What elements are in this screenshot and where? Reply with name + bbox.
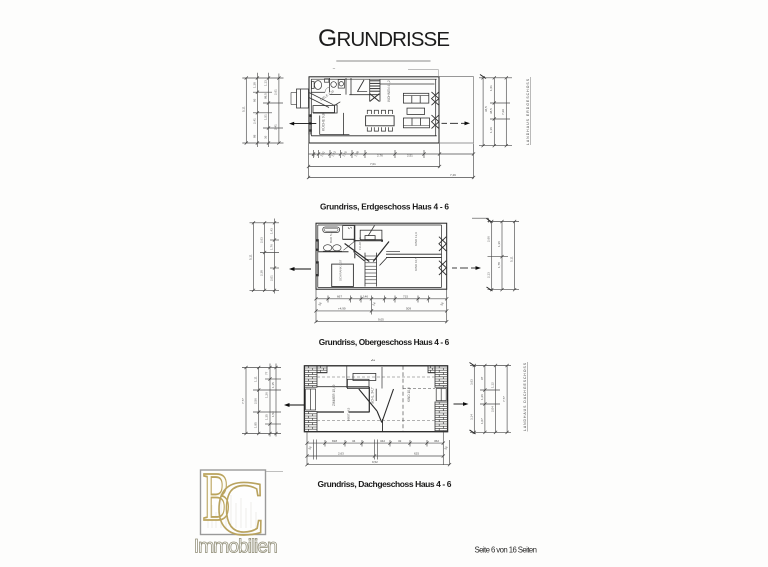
svg-text:1,13: 1,13 <box>264 80 268 86</box>
svg-text:G: G <box>318 25 337 52</box>
svg-text:Grundriss, Obergeschoss Haus 4: Grundriss, Obergeschoss Haus 4 - 6 <box>319 337 450 347</box>
svg-text:625: 625 <box>414 452 419 456</box>
svg-text:36: 36 <box>439 301 444 306</box>
svg-text:1,13: 1,13 <box>330 150 337 157</box>
svg-text:Grundriss, Dachgeschoss Haus 4: Grundriss, Dachgeschoss Haus 4 - 6 <box>318 479 452 489</box>
svg-text:1,76: 1,76 <box>270 244 274 250</box>
svg-text:5,11: 5,11 <box>242 106 246 112</box>
svg-text:2,61: 2,61 <box>274 89 278 95</box>
svg-text:1,51: 1,51 <box>264 114 268 120</box>
svg-text:SCHL. 34,7: SCHL. 34,7 <box>371 387 375 404</box>
svg-text:362: 362 <box>434 439 439 443</box>
svg-text:36,5: 36,5 <box>484 106 488 112</box>
svg-text:1,26: 1,26 <box>341 150 348 157</box>
svg-text:3,63: 3,63 <box>469 379 473 385</box>
svg-text:1,07: 1,07 <box>480 418 484 424</box>
svg-text:2,51: 2,51 <box>407 154 413 158</box>
svg-text:1,38: 1,38 <box>253 82 257 88</box>
svg-text:1,35: 1,35 <box>265 414 269 420</box>
svg-text:7,77: 7,77 <box>241 398 245 404</box>
svg-text:77: 77 <box>265 371 269 375</box>
svg-text:38,5: 38,5 <box>489 108 493 114</box>
svg-text:1,36: 1,36 <box>497 241 501 247</box>
svg-text:36: 36 <box>307 445 312 450</box>
svg-text:KIND 10,5: KIND 10,5 <box>414 257 418 271</box>
svg-text:509: 509 <box>406 307 411 311</box>
svg-text:DIELE 7,35: DIELE 7,35 <box>319 89 335 102</box>
svg-text:2,04: 2,04 <box>491 406 495 412</box>
svg-text:1,15: 1,15 <box>271 382 275 388</box>
svg-text:36: 36 <box>264 135 268 139</box>
svg-text:KIND 13,9: KIND 13,9 <box>414 232 418 246</box>
svg-text:34: 34 <box>352 439 356 443</box>
svg-text:667: 667 <box>337 295 342 299</box>
svg-text:2,01: 2,01 <box>270 275 274 281</box>
svg-text:1,26: 1,26 <box>265 392 269 398</box>
svg-text:KÜCHE 9,8: KÜCHE 9,8 <box>322 113 326 131</box>
svg-text:342: 342 <box>380 439 385 443</box>
svg-text:1,52: 1,52 <box>271 411 275 417</box>
svg-text:2,56: 2,56 <box>254 398 258 404</box>
svg-text:7,01: 7,01 <box>370 162 376 166</box>
svg-text:2,76: 2,76 <box>377 154 383 158</box>
svg-text:1,61: 1,61 <box>489 85 493 91</box>
svg-text:2,63: 2,63 <box>338 452 344 456</box>
svg-text:BAD 5,2: BAD 5,2 <box>329 231 333 243</box>
svg-text:1,01: 1,01 <box>319 150 326 157</box>
svg-text:7,77: 7,77 <box>502 396 506 402</box>
svg-text:KIND 10,5: KIND 10,5 <box>407 387 411 402</box>
svg-text:1,11: 1,11 <box>254 376 258 382</box>
svg-text:2,13: 2,13 <box>487 272 491 278</box>
svg-text:9,05: 9,05 <box>378 317 384 321</box>
svg-text:88: 88 <box>253 134 257 138</box>
svg-text:WOHNEN 41,2: WOHNEN 41,2 <box>387 80 391 102</box>
svg-text:3,14: 3,14 <box>469 414 473 420</box>
svg-text:36: 36 <box>317 301 322 306</box>
svg-text:LANDHAUS DACHGESCHOSS: LANDHAUS DACHGESCHOSS <box>523 362 527 431</box>
svg-text:146: 146 <box>363 295 368 299</box>
svg-text:715: 715 <box>403 295 408 299</box>
svg-text:Seite 6 von 16 Seiten: Seite 6 von 16 Seiten <box>475 546 538 555</box>
svg-text:2,41: 2,41 <box>253 118 257 124</box>
svg-text:LANDHAUS ERDGESCHOSS: LANDHAUS ERDGESCHOSS <box>526 78 530 145</box>
svg-text:36: 36 <box>443 445 448 450</box>
svg-text:RUNDRISSE: RUNDRISSE <box>337 28 451 51</box>
svg-text:SCHRANK 9,57: SCHRANK 9,57 <box>339 259 343 281</box>
svg-text:7,49: 7,49 <box>450 173 456 177</box>
svg-text:1,16: 1,16 <box>489 127 493 133</box>
svg-text:1,38: 1,38 <box>353 150 360 157</box>
svg-text:1,26: 1,26 <box>480 394 484 400</box>
svg-text:1,78: 1,78 <box>497 262 501 268</box>
svg-text:7,29: 7,29 <box>501 109 505 115</box>
svg-text:2,38: 2,38 <box>260 270 264 276</box>
svg-text:818: 818 <box>332 439 337 443</box>
svg-text:5,11: 5,11 <box>510 256 514 262</box>
svg-text:2,63: 2,63 <box>260 237 264 243</box>
svg-text:1,12: 1,12 <box>491 382 495 388</box>
svg-text:ABST. 4,5: ABST. 4,5 <box>347 407 351 421</box>
svg-text:Grundriss, Erdgeschoss Haus 4: Grundriss, Erdgeschoss Haus 4 - 6 <box>320 202 449 212</box>
svg-text:2,41: 2,41 <box>274 124 278 130</box>
svg-text:24: 24 <box>371 301 376 306</box>
svg-text:9,52: 9,52 <box>372 460 378 464</box>
svg-text:97: 97 <box>480 376 484 380</box>
svg-text:5,11: 5,11 <box>249 254 253 260</box>
svg-text:86: 86 <box>253 98 257 102</box>
svg-text:ZIMMER 15,49: ZIMMER 15,49 <box>332 384 336 406</box>
svg-text:Immobilien: Immobilien <box>194 536 278 558</box>
svg-text:1,85: 1,85 <box>254 422 258 428</box>
svg-text:1,43: 1,43 <box>270 228 274 234</box>
svg-text:98,5: 98,5 <box>264 93 268 99</box>
svg-text:2,66: 2,66 <box>487 236 491 242</box>
svg-text:+4,99: +4,99 <box>338 307 346 311</box>
svg-text:32: 32 <box>398 439 402 443</box>
